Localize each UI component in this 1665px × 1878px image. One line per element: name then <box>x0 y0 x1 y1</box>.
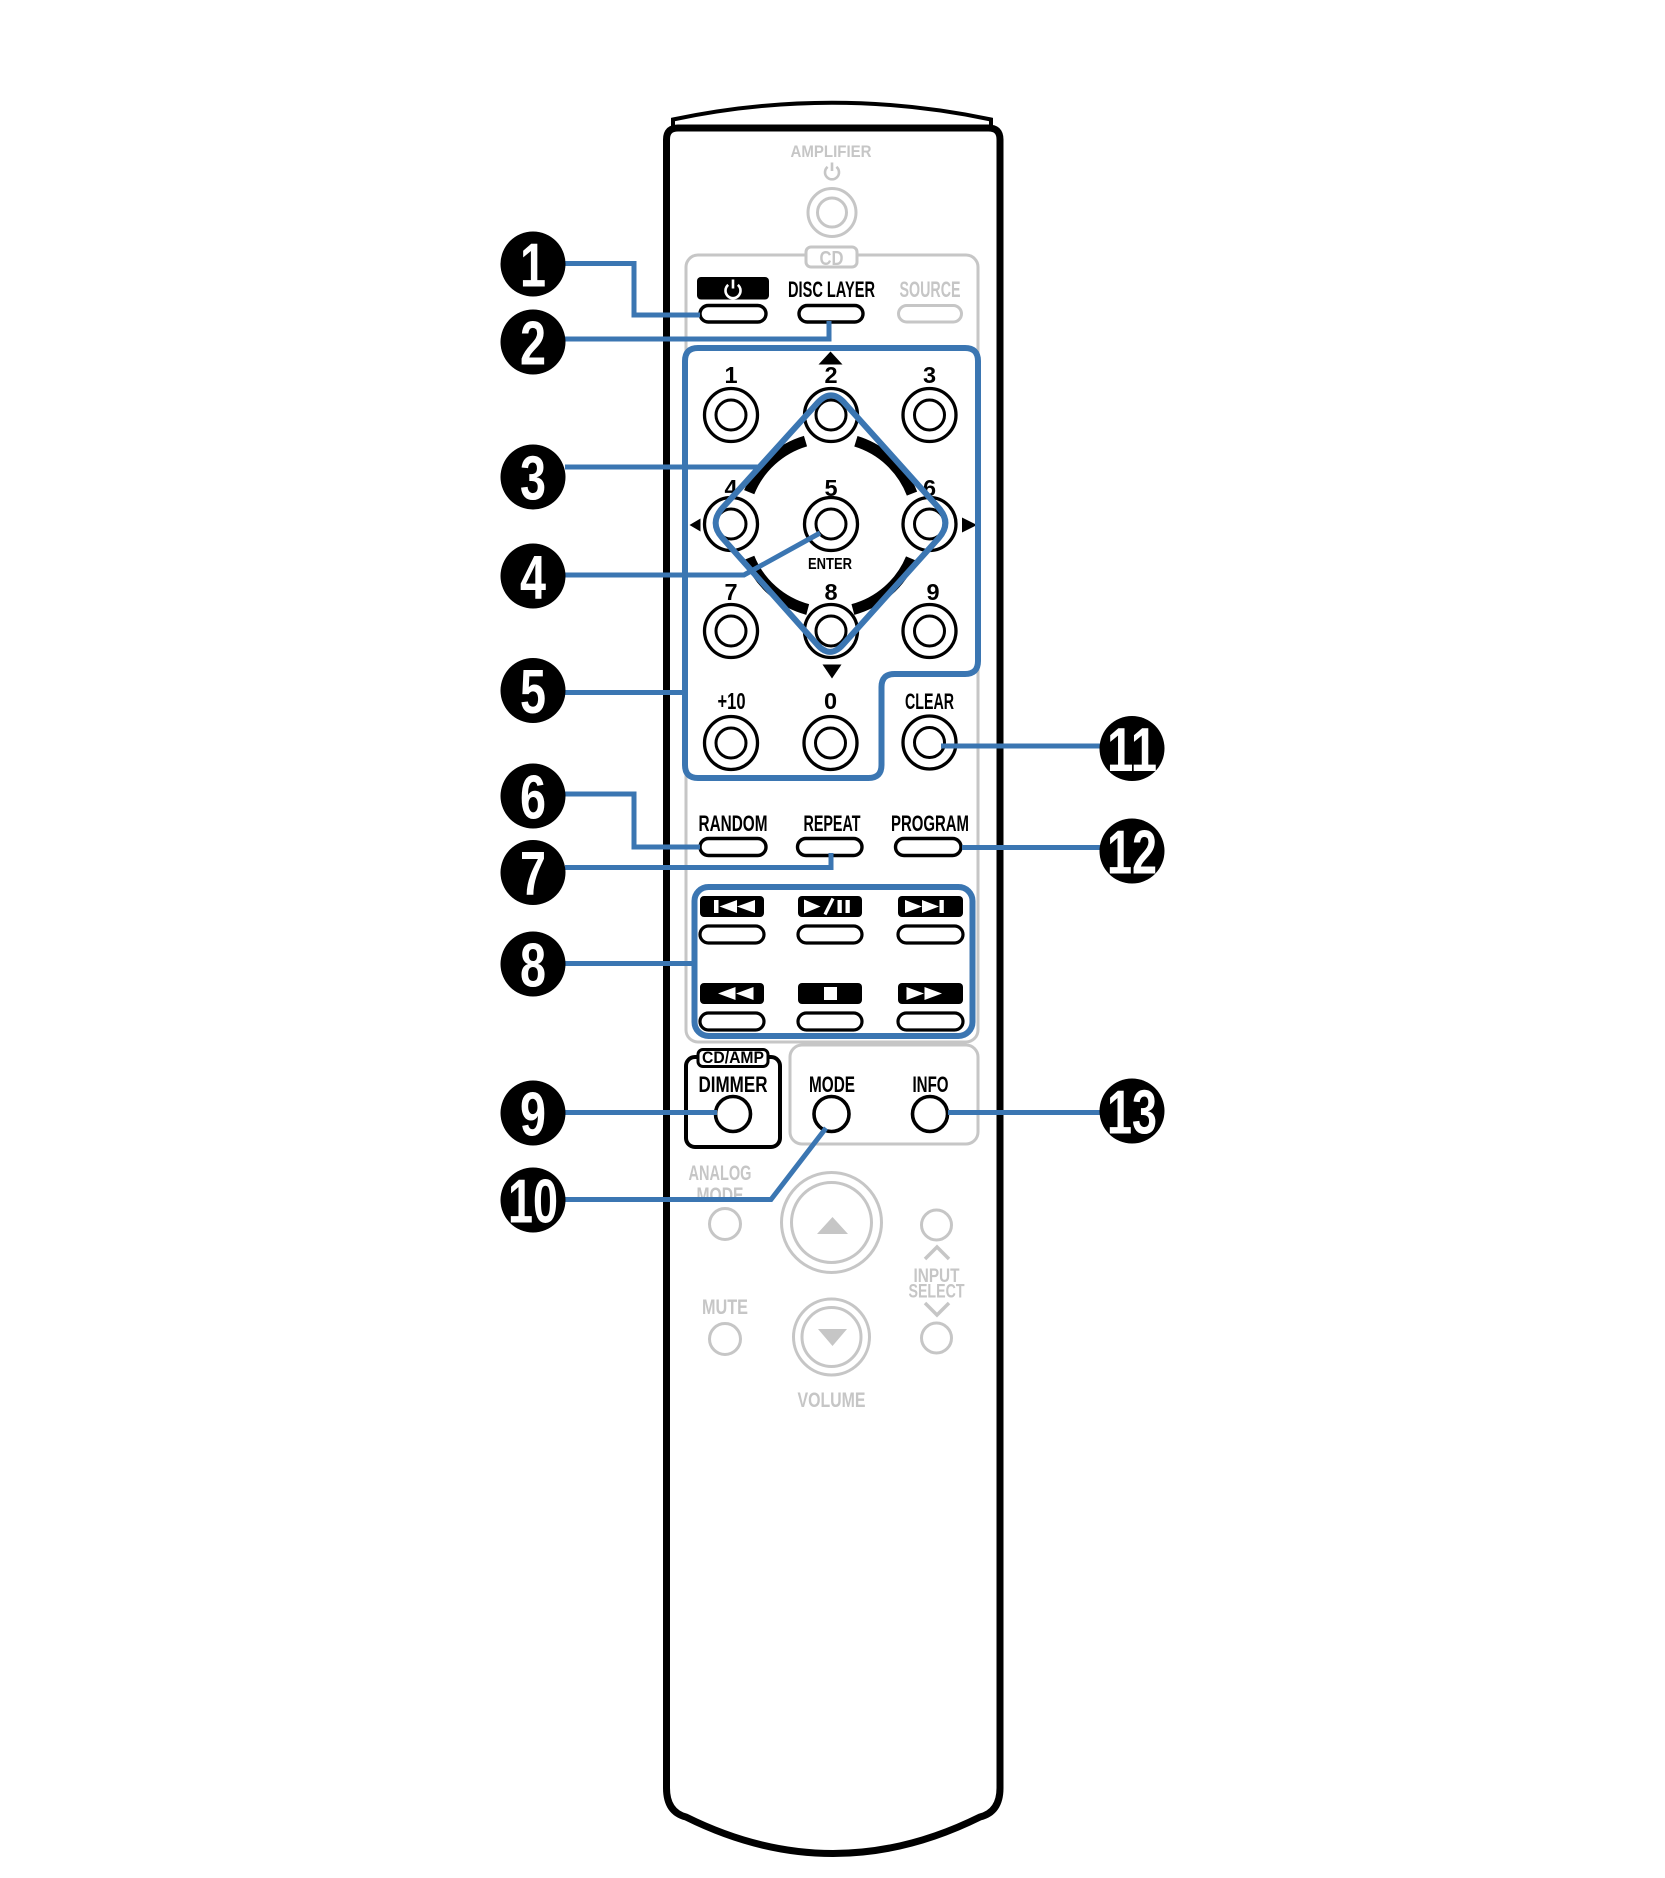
svg-text:9: 9 <box>520 1081 546 1150</box>
svg-text:3: 3 <box>520 445 546 514</box>
svg-text:9: 9 <box>926 579 939 605</box>
svg-text:0: 0 <box>824 688 837 714</box>
svg-text:RANDOM: RANDOM <box>699 811 768 836</box>
svg-text:1: 1 <box>520 232 546 301</box>
svg-text:CD/AMP: CD/AMP <box>702 1049 764 1067</box>
svg-text:DISC LAYER: DISC LAYER <box>788 277 875 302</box>
svg-text:MODE: MODE <box>697 1184 744 1207</box>
svg-text:CD: CD <box>820 248 844 270</box>
svg-text:7: 7 <box>520 840 546 909</box>
svg-text:1: 1 <box>724 362 737 388</box>
svg-text:ENTER: ENTER <box>808 556 852 573</box>
svg-text:ANALOG: ANALOG <box>689 1162 752 1185</box>
svg-text:SOURCE: SOURCE <box>900 277 961 302</box>
svg-text:5: 5 <box>520 658 546 727</box>
svg-text:2: 2 <box>824 362 837 388</box>
svg-text:11: 11 <box>1107 716 1157 785</box>
svg-text:8: 8 <box>824 579 837 605</box>
svg-text:2: 2 <box>520 310 546 379</box>
svg-text:INFO: INFO <box>913 1072 949 1097</box>
svg-text:REPEAT: REPEAT <box>804 811 861 836</box>
svg-text:AMPLIFIER: AMPLIFIER <box>791 142 872 161</box>
svg-text:+10: +10 <box>718 688 746 714</box>
svg-text:12: 12 <box>1107 819 1157 888</box>
svg-text:8: 8 <box>520 932 546 1001</box>
svg-text:6: 6 <box>520 764 546 833</box>
svg-text:4: 4 <box>520 544 546 613</box>
svg-text:3: 3 <box>923 362 936 388</box>
svg-text:SELECT: SELECT <box>909 1281 965 1303</box>
svg-text:7: 7 <box>724 579 737 605</box>
svg-text:CLEAR: CLEAR <box>905 689 954 714</box>
svg-text:10: 10 <box>508 1168 558 1237</box>
svg-text:VOLUME: VOLUME <box>798 1389 866 1412</box>
svg-text:PROGRAM: PROGRAM <box>891 811 969 836</box>
svg-text:DIMMER: DIMMER <box>699 1072 768 1097</box>
svg-text:13: 13 <box>1107 1079 1157 1148</box>
svg-text:MUTE: MUTE <box>702 1296 748 1319</box>
svg-text:MODE: MODE <box>809 1072 855 1097</box>
